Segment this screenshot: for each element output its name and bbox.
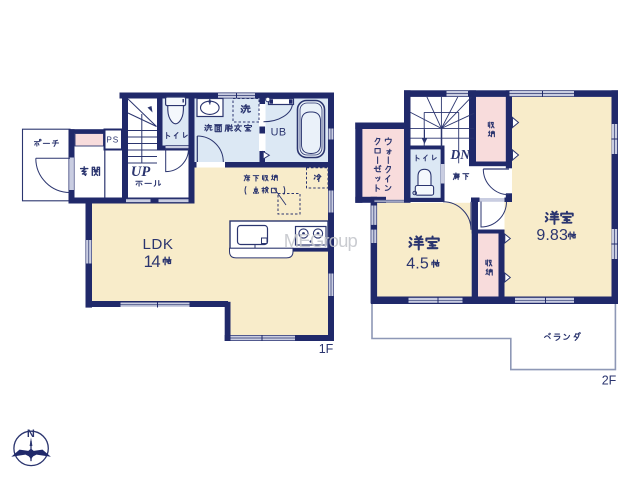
svg-text:MEGroup: MEGroup [284,230,358,251]
svg-text:LDK: LDK [142,236,173,253]
svg-text:UB: UB [271,127,287,139]
svg-text:9.83: 9.83 [536,227,568,244]
svg-text:1F: 1F [319,342,334,356]
svg-text:14: 14 [144,252,161,271]
svg-text:4.5: 4.5 [406,255,429,272]
svg-text:DN: DN [450,147,472,162]
svg-text:PS: PS [106,136,119,145]
svg-text:UP: UP [131,164,150,180]
svg-text:2F: 2F [602,374,617,388]
svg-text:N: N [27,428,35,440]
